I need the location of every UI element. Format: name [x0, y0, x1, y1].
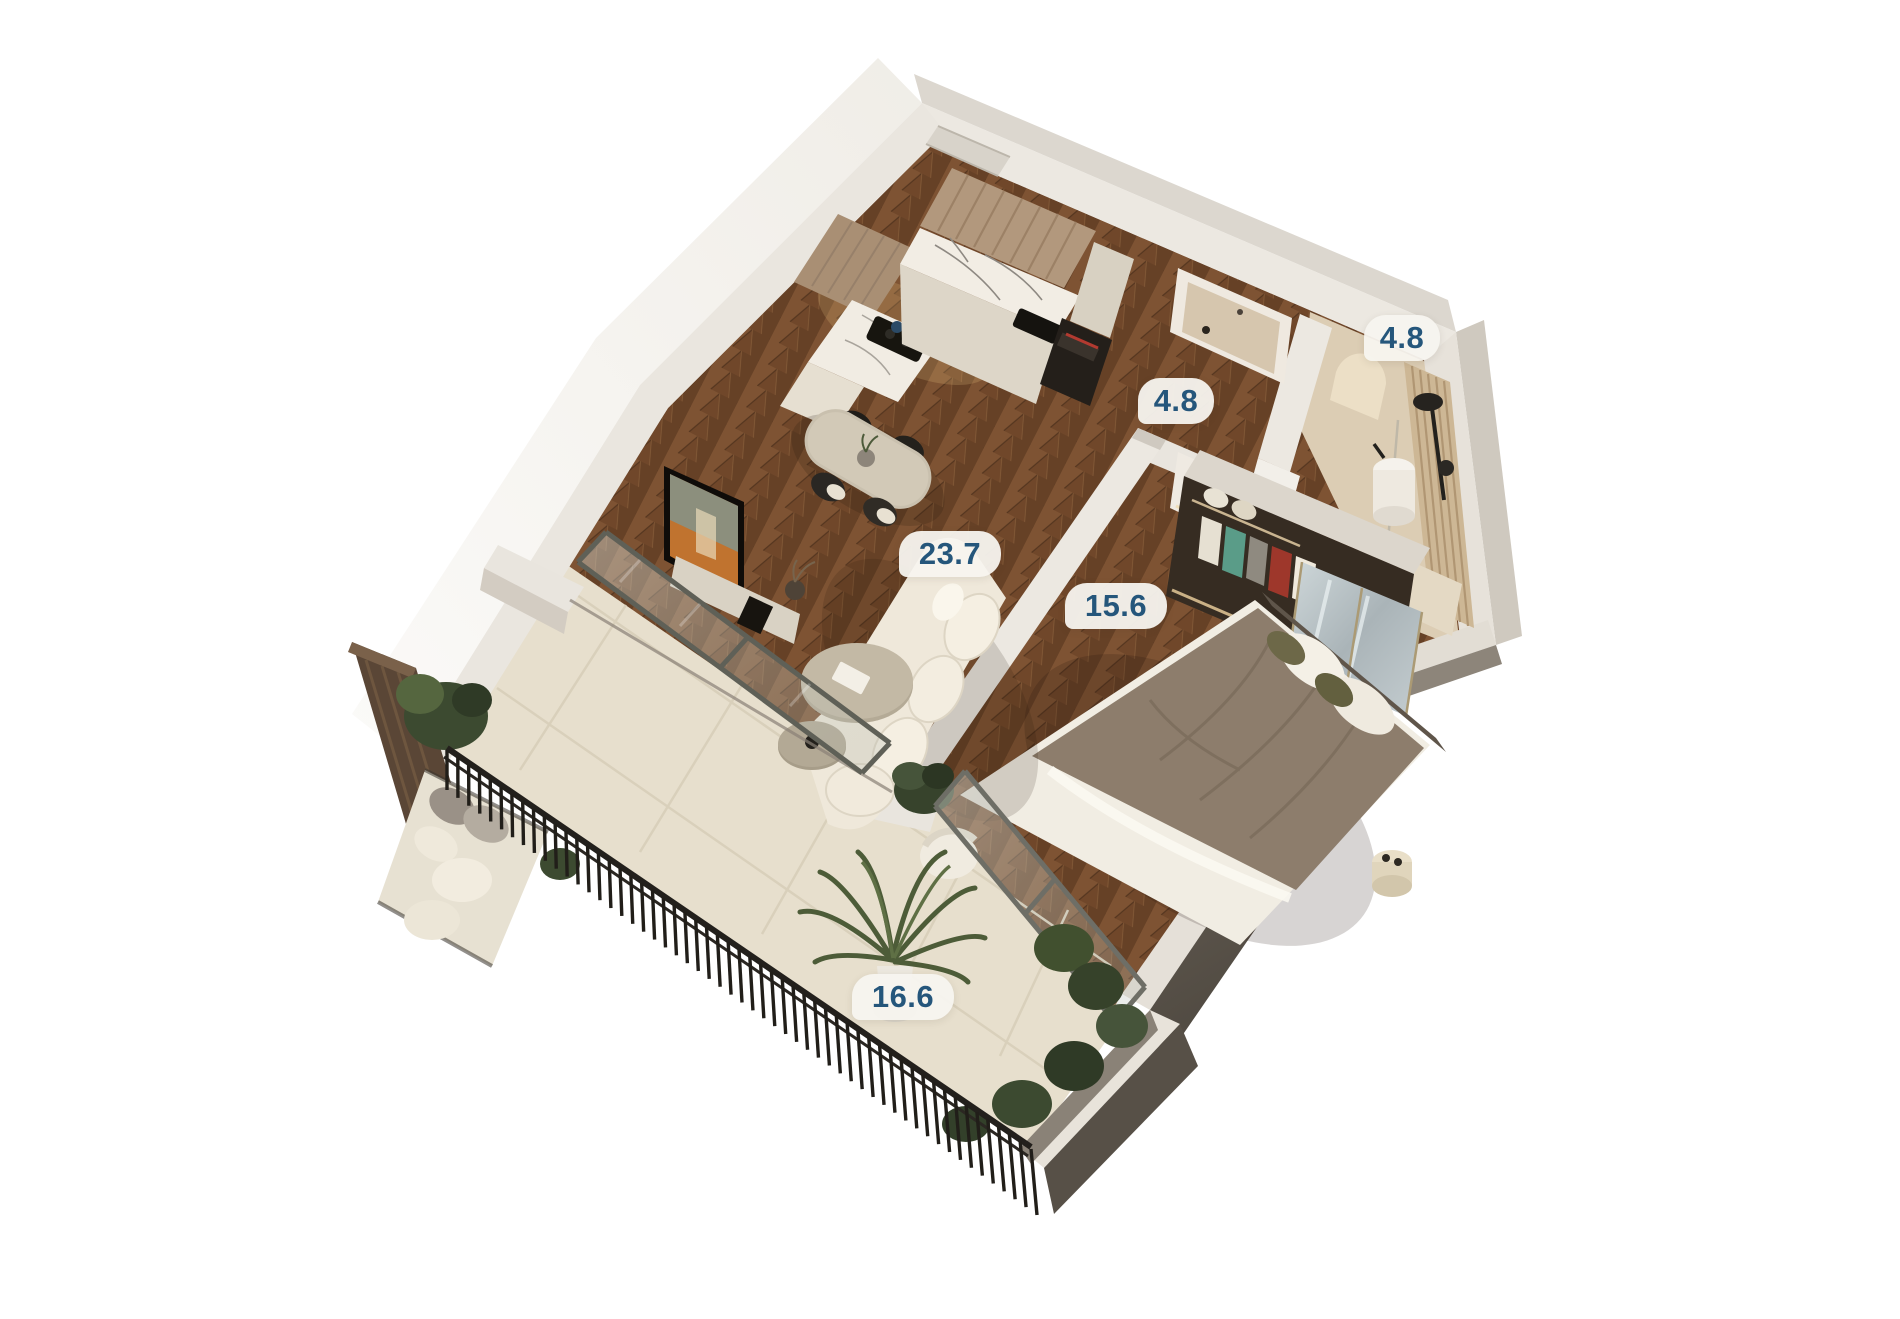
room-area-label-bedroom: 15.6: [1065, 583, 1167, 629]
apartment-3d-scene: [0, 0, 1900, 1319]
balcony-seat-cushion: [432, 858, 492, 902]
room-area-label-hallway: 4.8: [1138, 378, 1214, 424]
floorplan-render: 23.7 15.6 4.8 4.8 16.6: [0, 0, 1900, 1319]
hand-shower: [1438, 460, 1454, 476]
room-area-label-balcony: 16.6: [852, 974, 954, 1020]
hanging-clothes: [1198, 516, 1222, 566]
room-area-label-living-kitchen: 23.7: [899, 531, 1001, 577]
rain-shower-head: [1413, 393, 1443, 411]
console-vase: [785, 580, 805, 600]
kettle: [891, 321, 903, 333]
door-handle: [1202, 326, 1210, 334]
balcony-seat-cushion: [404, 900, 460, 940]
room-area-label-bathroom: 4.8: [1364, 315, 1440, 361]
